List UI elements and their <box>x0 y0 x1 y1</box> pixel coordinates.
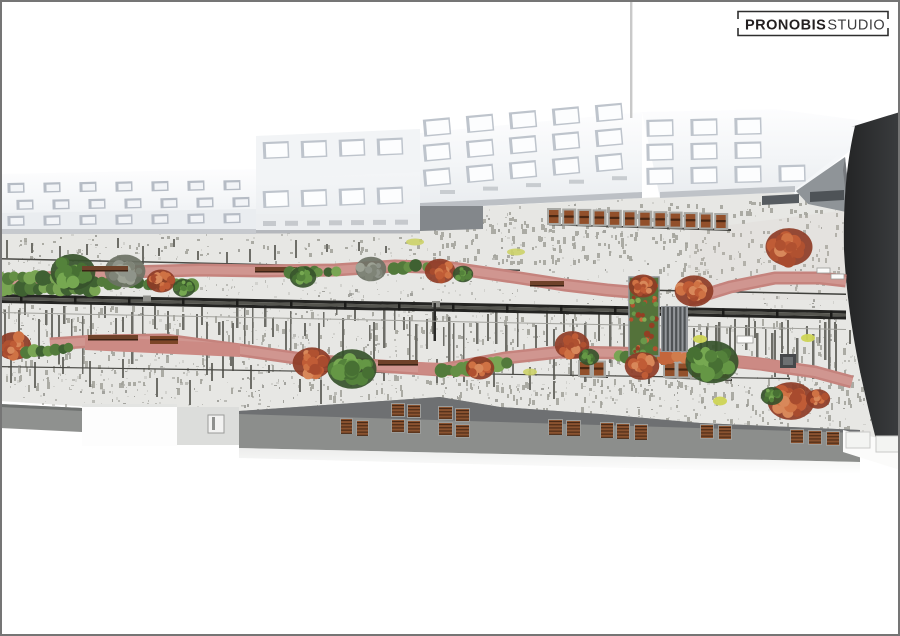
svg-text:PRONOBISSTUDIO: PRONOBISSTUDIO <box>745 18 885 34</box>
